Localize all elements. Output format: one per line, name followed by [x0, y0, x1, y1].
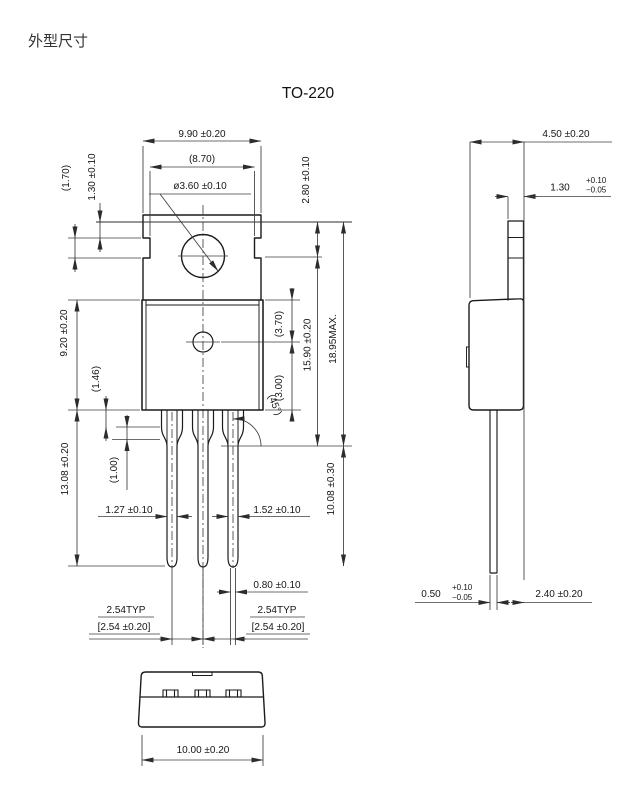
dim-lead-tip-width: 0.80 ±0.10: [253, 580, 301, 591]
dim-top-to-ear: 1.30 ±0.10: [87, 153, 98, 201]
bottom-view: 10.00 ±0.20: [138, 672, 265, 766]
dim-ear-height: (1.70): [61, 165, 72, 191]
dim-lead-thickness: 0.50: [421, 589, 441, 600]
chamfer-arc: [233, 419, 261, 446]
side-lead-extensions: [490, 575, 497, 610]
bottom-dimensions: 10.00 ±0.20: [142, 735, 263, 766]
hole-leader-line: [160, 194, 218, 271]
dim-tab-thickness-tol-plus: +0.10: [586, 176, 607, 185]
dim-body-height: 9.20 ±0.20: [59, 309, 70, 357]
side-lead: [490, 410, 497, 573]
dim-pitch-left-tol: [2.54 ±0.20]: [98, 622, 151, 633]
dim-tab-thickness: 1.30: [550, 183, 570, 194]
dim-lead-width-outer: 1.27 ±0.10: [105, 505, 153, 516]
bottom-body-outline: [138, 672, 265, 727]
dim-lead-width-right: 1.52 ±0.10: [253, 505, 301, 516]
dim-overall-width: 9.90 ±0.20: [178, 129, 226, 140]
bottom-pin-stub-3: [226, 690, 241, 697]
side-dimensions: 4.50 ±0.20 1.30 +0.10 −0.05 0.50 +0.10 −…: [415, 129, 612, 603]
dim-pitch-left-typ: 2.54TYP: [107, 605, 146, 616]
side-view: 4.50 ±0.20 1.30 +0.10 −0.05 0.50 +0.10 −…: [415, 129, 612, 610]
dim-overall-depth: 4.50 ±0.20: [542, 129, 590, 140]
package-name: TO-220: [282, 85, 335, 102]
dim-top-to-ear-bottom: 2.80 ±0.10: [301, 156, 312, 204]
dim-body-to-lead-tip: 13.08 ±0.20: [60, 442, 71, 495]
tab-outline: [143, 215, 261, 300]
dim-bottom-overall-width: 10.00 ±0.20: [177, 745, 230, 756]
dim-lead-thickness-tol-plus: +0.10: [452, 583, 473, 592]
bottom-pin-stub-1: [163, 690, 178, 697]
dim-lead-thickness-tol-minus: −0.05: [452, 593, 473, 602]
dim-overall-height: 18.95MAX.: [328, 314, 339, 363]
dim-ear-to-shoulder: 15.90 ±0.20: [303, 318, 314, 371]
dim-body-top-to-center: (3.70): [274, 311, 285, 337]
dim-shoulder-step1: (1.46): [91, 366, 102, 392]
dim-lead-to-back: 2.40 ±0.20: [535, 589, 583, 600]
bottom-outline: [138, 672, 265, 727]
dim-pitch-right-tol: [2.54 ±0.20]: [252, 622, 305, 633]
side-tab-segments: [508, 238, 524, 259]
side-tab-outline: [508, 221, 524, 300]
datasheet-outline-drawing: 外型尺寸 TO-220: [0, 0, 643, 786]
dim-tab-thickness-tol-minus: −0.05: [586, 186, 607, 195]
lead-extension-lines: [172, 568, 236, 645]
front-dimensions: 9.90 ±0.20 (8.70) ø3.60 ±0.10 (1.70) 1.3…: [59, 129, 352, 645]
side-outline: [467, 221, 524, 610]
front-view: 9.90 ±0.20 (8.70) ø3.60 ±0.10 (1.70) 1.3…: [59, 129, 352, 648]
dim-shoulder-to-lead-tip: 10.08 ±0.30: [326, 462, 337, 515]
to220-drawing: 外型尺寸 TO-220: [0, 0, 643, 786]
body-outline: [142, 300, 263, 410]
dim-pitch-right-typ: 2.54TYP: [258, 605, 297, 616]
page-title: 外型尺寸: [28, 32, 88, 50]
front-outline: [142, 205, 263, 648]
bottom-pin-stub-2: [195, 690, 210, 697]
dim-shoulder-step2: (1.00): [109, 457, 120, 483]
dim-hole-diameter: ø3.60 ±0.10: [173, 181, 227, 192]
side-body-outline: [469, 299, 524, 410]
dim-hole-flat-width: (8.70): [189, 154, 215, 165]
